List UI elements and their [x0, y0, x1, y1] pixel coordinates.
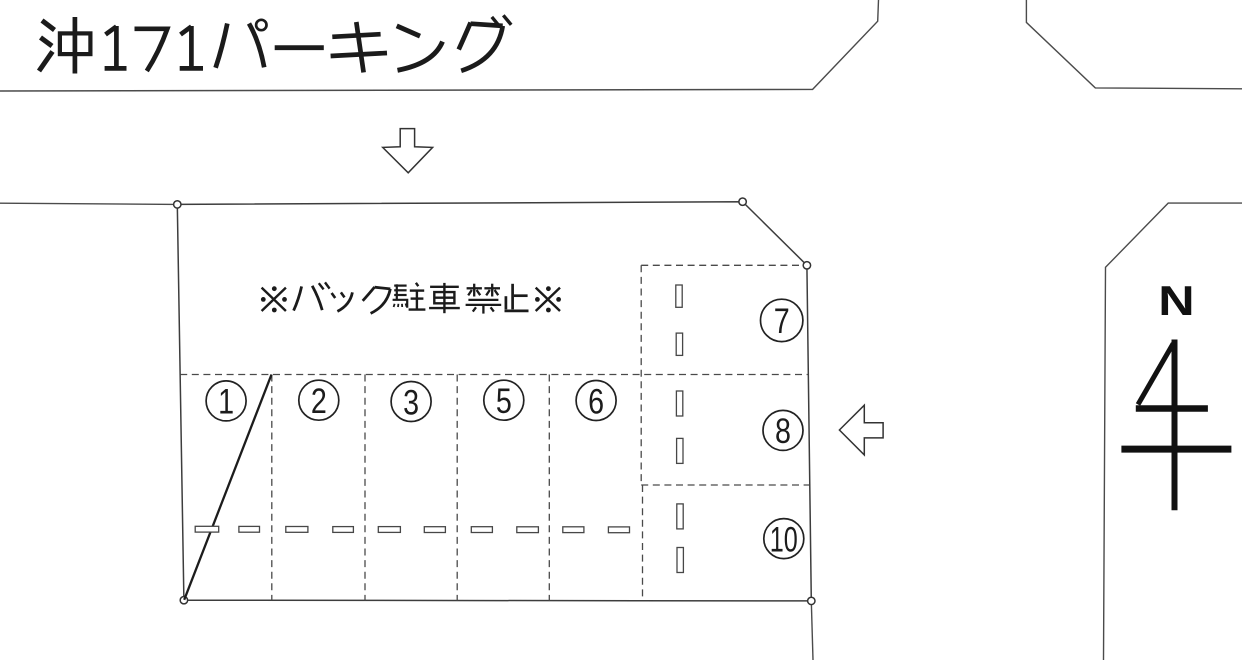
svg-text:7: 7 [774, 301, 790, 340]
svg-text:2: 2 [311, 381, 327, 420]
svg-text:8: 8 [775, 411, 791, 450]
svg-text:N: N [1158, 277, 1194, 324]
svg-text:3: 3 [403, 383, 419, 422]
svg-text:5: 5 [496, 381, 512, 420]
svg-text:6: 6 [588, 382, 604, 421]
svg-text:10: 10 [770, 520, 798, 559]
svg-text:1: 1 [218, 382, 234, 421]
